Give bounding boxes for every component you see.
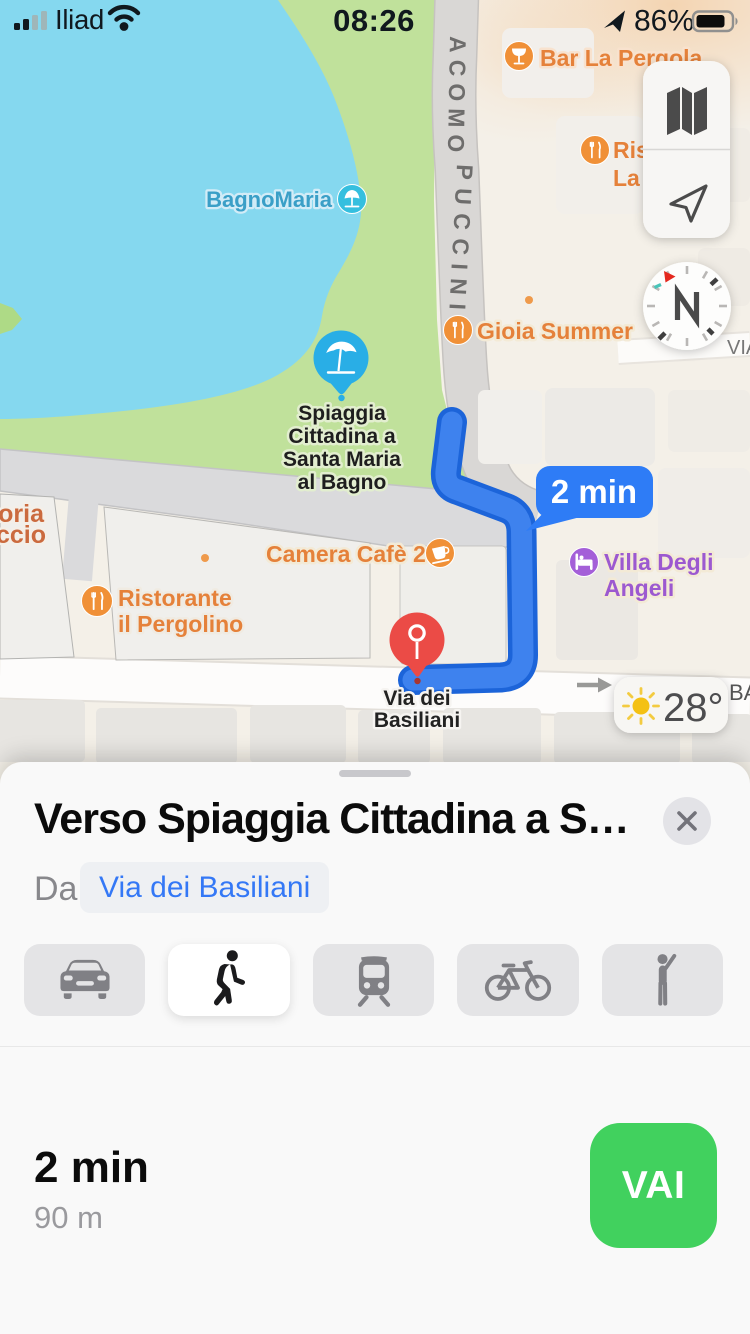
svg-text:Angeli: Angeli	[604, 575, 674, 601]
svg-text:28°: 28°	[663, 686, 724, 730]
svg-text:VIA: VIA	[727, 337, 750, 359]
svg-text:ACOMO: ACOMO	[443, 36, 471, 160]
svg-text:86%: 86%	[634, 5, 694, 38]
svg-text:ccio: ccio	[0, 521, 46, 549]
svg-text:Iliad: Iliad	[55, 4, 104, 35]
svg-text:al Bagno: al Bagno	[298, 471, 387, 494]
svg-text:Santa Maria: Santa Maria	[283, 448, 401, 471]
svg-text:BagnoMaria: BagnoMaria	[206, 187, 333, 212]
svg-text:La: La	[613, 165, 640, 191]
svg-text:2 min: 2 min	[551, 473, 637, 510]
svg-text:Spiaggia: Spiaggia	[298, 402, 386, 425]
svg-text:Camera Cafè 2: Camera Cafè 2	[266, 541, 426, 567]
svg-text:Ristorante: Ristorante	[118, 585, 232, 611]
svg-text:Cittadina a: Cittadina a	[288, 425, 396, 448]
svg-text:Via dei: Via dei	[383, 687, 450, 710]
svg-text:il Pergolino: il Pergolino	[118, 611, 243, 637]
svg-text:Basiliani: Basiliani	[374, 709, 460, 732]
svg-text:Villa Degli: Villa Degli	[604, 549, 714, 575]
svg-text:BA: BA	[729, 680, 750, 705]
svg-text:08:26: 08:26	[333, 3, 415, 38]
svg-text:Gioia Summer: Gioia Summer	[477, 318, 633, 344]
